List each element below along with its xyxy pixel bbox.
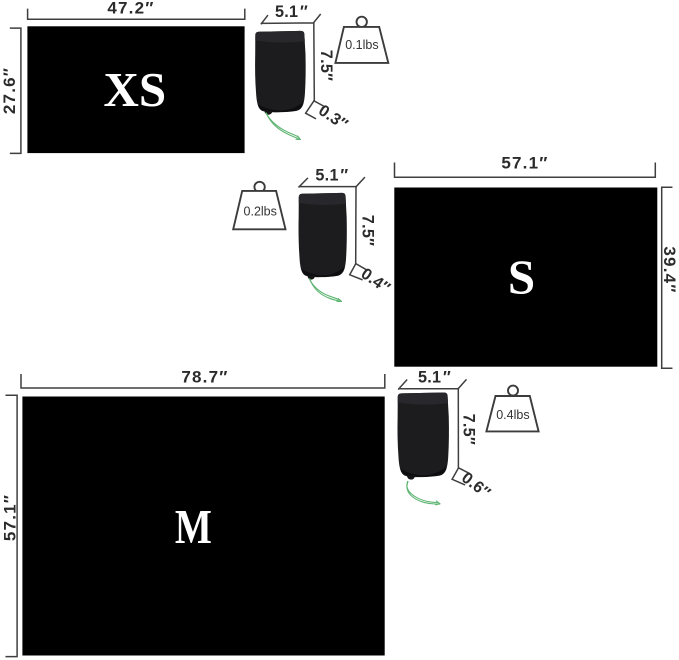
svg-text:5.1 ″: 5.1 ″ [275, 3, 308, 21]
svg-text:0.4lbs: 0.4lbs [496, 408, 529, 422]
svg-text:0.3″: 0.3″ [315, 101, 351, 134]
svg-text:S: S [508, 250, 535, 305]
svg-text:5.1 ″: 5.1 ″ [315, 167, 348, 185]
svg-text:7.5″: 7.5″ [317, 50, 335, 81]
svg-text:7.5″: 7.5″ [358, 215, 376, 246]
svg-text:7.5″: 7.5″ [459, 414, 477, 445]
svg-text:57.1″: 57.1″ [501, 154, 548, 173]
svg-text:78.7″: 78.7″ [181, 368, 228, 387]
svg-text:5.1 ″: 5.1 ″ [418, 368, 451, 386]
svg-text:M: M [175, 499, 212, 554]
svg-text:47.2″: 47.2″ [107, 0, 154, 17]
svg-text:39.4″: 39.4″ [660, 246, 679, 293]
svg-text:0.2lbs: 0.2lbs [244, 205, 277, 219]
svg-text:57.1″: 57.1″ [1, 494, 20, 541]
svg-text:XS: XS [103, 62, 166, 117]
svg-text:27.6″: 27.6″ [0, 67, 19, 114]
svg-text:0.6″: 0.6″ [458, 469, 494, 503]
svg-text:0.1lbs: 0.1lbs [345, 38, 378, 52]
svg-text:0.4″: 0.4″ [358, 265, 394, 298]
